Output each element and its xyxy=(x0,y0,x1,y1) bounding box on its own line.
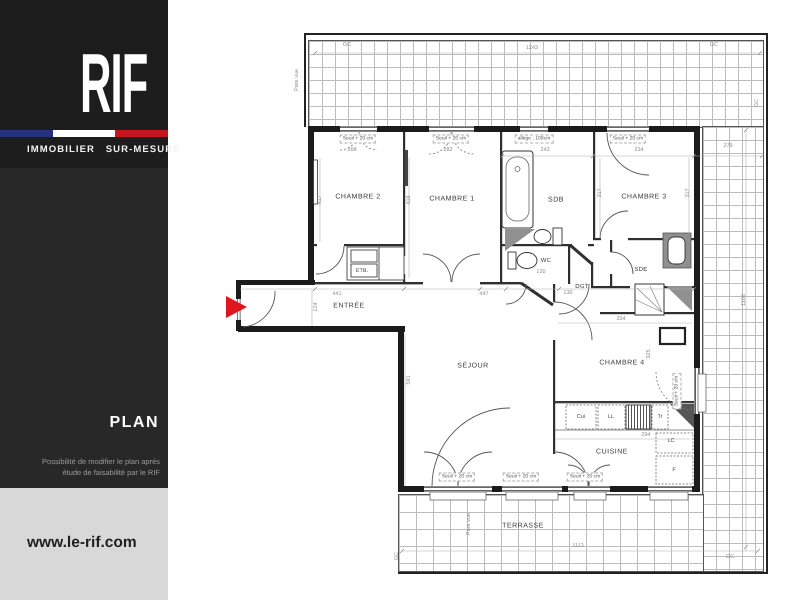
door-swings xyxy=(243,133,649,486)
terrace-outer-frame-right xyxy=(766,33,768,573)
terrace-right xyxy=(702,126,764,572)
room-label-s-jour: SÉJOUR xyxy=(457,363,488,370)
dim-label-130: 130 xyxy=(563,290,572,296)
note-line-1: Possibilité de modifier le plan après xyxy=(42,457,160,468)
room-label-chambre-2: CHAMBRE 2 xyxy=(335,194,380,201)
sde-corner-unit xyxy=(666,286,692,311)
entry-arrow-icon xyxy=(226,296,247,318)
sdb-vanity xyxy=(505,229,535,251)
radiator-chambre1 xyxy=(405,150,409,186)
terrace-outer-frame-left xyxy=(304,33,306,127)
dim-label-418: 418 xyxy=(406,195,412,204)
dim-label-282: 282 xyxy=(443,147,452,153)
seuil-label-seuil-20-cm: Seuil + 20 cm xyxy=(503,473,539,482)
dim-label-120: 120 xyxy=(536,269,545,275)
dim-label-243: 243 xyxy=(540,147,549,153)
room-label-cuisine: CUISINE xyxy=(596,449,628,456)
note-text: Possibilité de modifier le plan après ét… xyxy=(42,457,160,479)
kitchen-sink xyxy=(670,404,694,428)
sdb-toilet xyxy=(534,228,562,245)
dim-label-pare-vue: Pare vue xyxy=(294,69,300,91)
entry-closet xyxy=(347,247,404,280)
sde-shower xyxy=(635,284,664,315)
terrace-bottom xyxy=(398,494,704,572)
wc-toilet xyxy=(508,252,537,269)
interior-walls xyxy=(313,132,694,454)
seuil-label-seuil-20-cm: Seuil + 20 cm xyxy=(567,473,603,482)
dim-label-417: 417 xyxy=(317,195,323,204)
windows xyxy=(237,127,700,492)
chambre4-cabinet xyxy=(660,328,685,344)
terrace-outer-frame-top xyxy=(304,33,768,35)
window-swings-dashed xyxy=(340,132,694,410)
seuil-label-seuil-20-cm: Seuil + 20 cm xyxy=(433,135,469,144)
dim-label-447: 447 xyxy=(479,291,488,297)
appliance-label-etb-: ETB. xyxy=(356,268,368,274)
appliance-label-f: F xyxy=(672,467,675,473)
dishwasher-hatch xyxy=(626,405,651,429)
dim-label-317: 317 xyxy=(685,188,691,197)
section-title: PLAN xyxy=(109,414,159,432)
terrace-outer-frame-bottom xyxy=(398,572,768,574)
tagline-text: IMMOBILIER SUR-MESURE xyxy=(27,144,181,155)
french-flag-stripe xyxy=(0,130,168,137)
terrace-top xyxy=(308,40,764,128)
sde-washbasin xyxy=(663,233,691,268)
dim-label-294: 294 xyxy=(641,432,650,438)
seuil-label-seuil-20-cm: Seuil + 20 cm xyxy=(610,135,646,144)
website-link[interactable]: www.le-rif.com xyxy=(27,534,168,552)
dim-label-441: 441 xyxy=(332,291,341,297)
dim-label-325: 325 xyxy=(646,349,652,358)
angled-walls xyxy=(521,245,592,305)
room-label-chambre-1: CHAMBRE 1 xyxy=(429,196,474,203)
appliance-label-lc: LC xyxy=(667,438,674,444)
room-label-entr-e: ENTRÉE xyxy=(333,303,364,310)
room-label-sde: SDE xyxy=(634,267,647,273)
sidebar: RIF IMMOBILIER SUR-MESURE PLAN Possibili… xyxy=(0,0,168,600)
dim-label-591: 591 xyxy=(406,375,412,384)
dim-label-268: 268 xyxy=(347,147,356,153)
window-sills xyxy=(430,374,706,500)
footer: www.le-rif.com xyxy=(0,488,168,600)
note-line-2: étude de faisabilité par le RIF xyxy=(42,468,160,479)
room-label-chambre-3: CHAMBRE 3 xyxy=(621,194,666,201)
rif-logo: RIF IMMOBILIER SUR-MESURE xyxy=(0,0,168,168)
appliance-label-ll: LL xyxy=(608,414,614,420)
seuil-label-seuil-20-cm: Seuil + 20 cm xyxy=(340,135,376,144)
appliance-label-cui: Cui xyxy=(577,414,585,420)
dim-label-317: 317 xyxy=(597,188,603,197)
room-label-wc: WC xyxy=(541,258,552,264)
bathtub xyxy=(502,151,533,228)
seuil-label-seuil-20-cm: Seuil + 20 cm xyxy=(673,373,682,409)
flag-white-segment xyxy=(53,130,115,137)
appliance-label-tr: Tr xyxy=(658,414,663,420)
radiator-chambre2 xyxy=(314,160,318,204)
dim-label-124: 124 xyxy=(313,302,319,311)
outer-walls xyxy=(236,126,700,492)
seuil-label-seuil-20-cm: Seuil + 20 cm xyxy=(439,473,475,482)
room-label-sdb: SDB xyxy=(548,197,564,204)
room-label-chambre-4: CHAMBRE 4 xyxy=(599,360,644,367)
flag-red-segment xyxy=(115,130,168,137)
brand-text: RIF xyxy=(80,46,147,122)
dim-label-234: 234 xyxy=(634,147,643,153)
kitchen-counter xyxy=(555,403,694,484)
flag-blue-segment xyxy=(0,130,53,137)
seuil-label-all-ge-100cm: allège : 100cm xyxy=(515,135,554,144)
dim-label-354: 354 xyxy=(616,316,625,322)
room-label-dgt: DGT xyxy=(575,284,589,290)
